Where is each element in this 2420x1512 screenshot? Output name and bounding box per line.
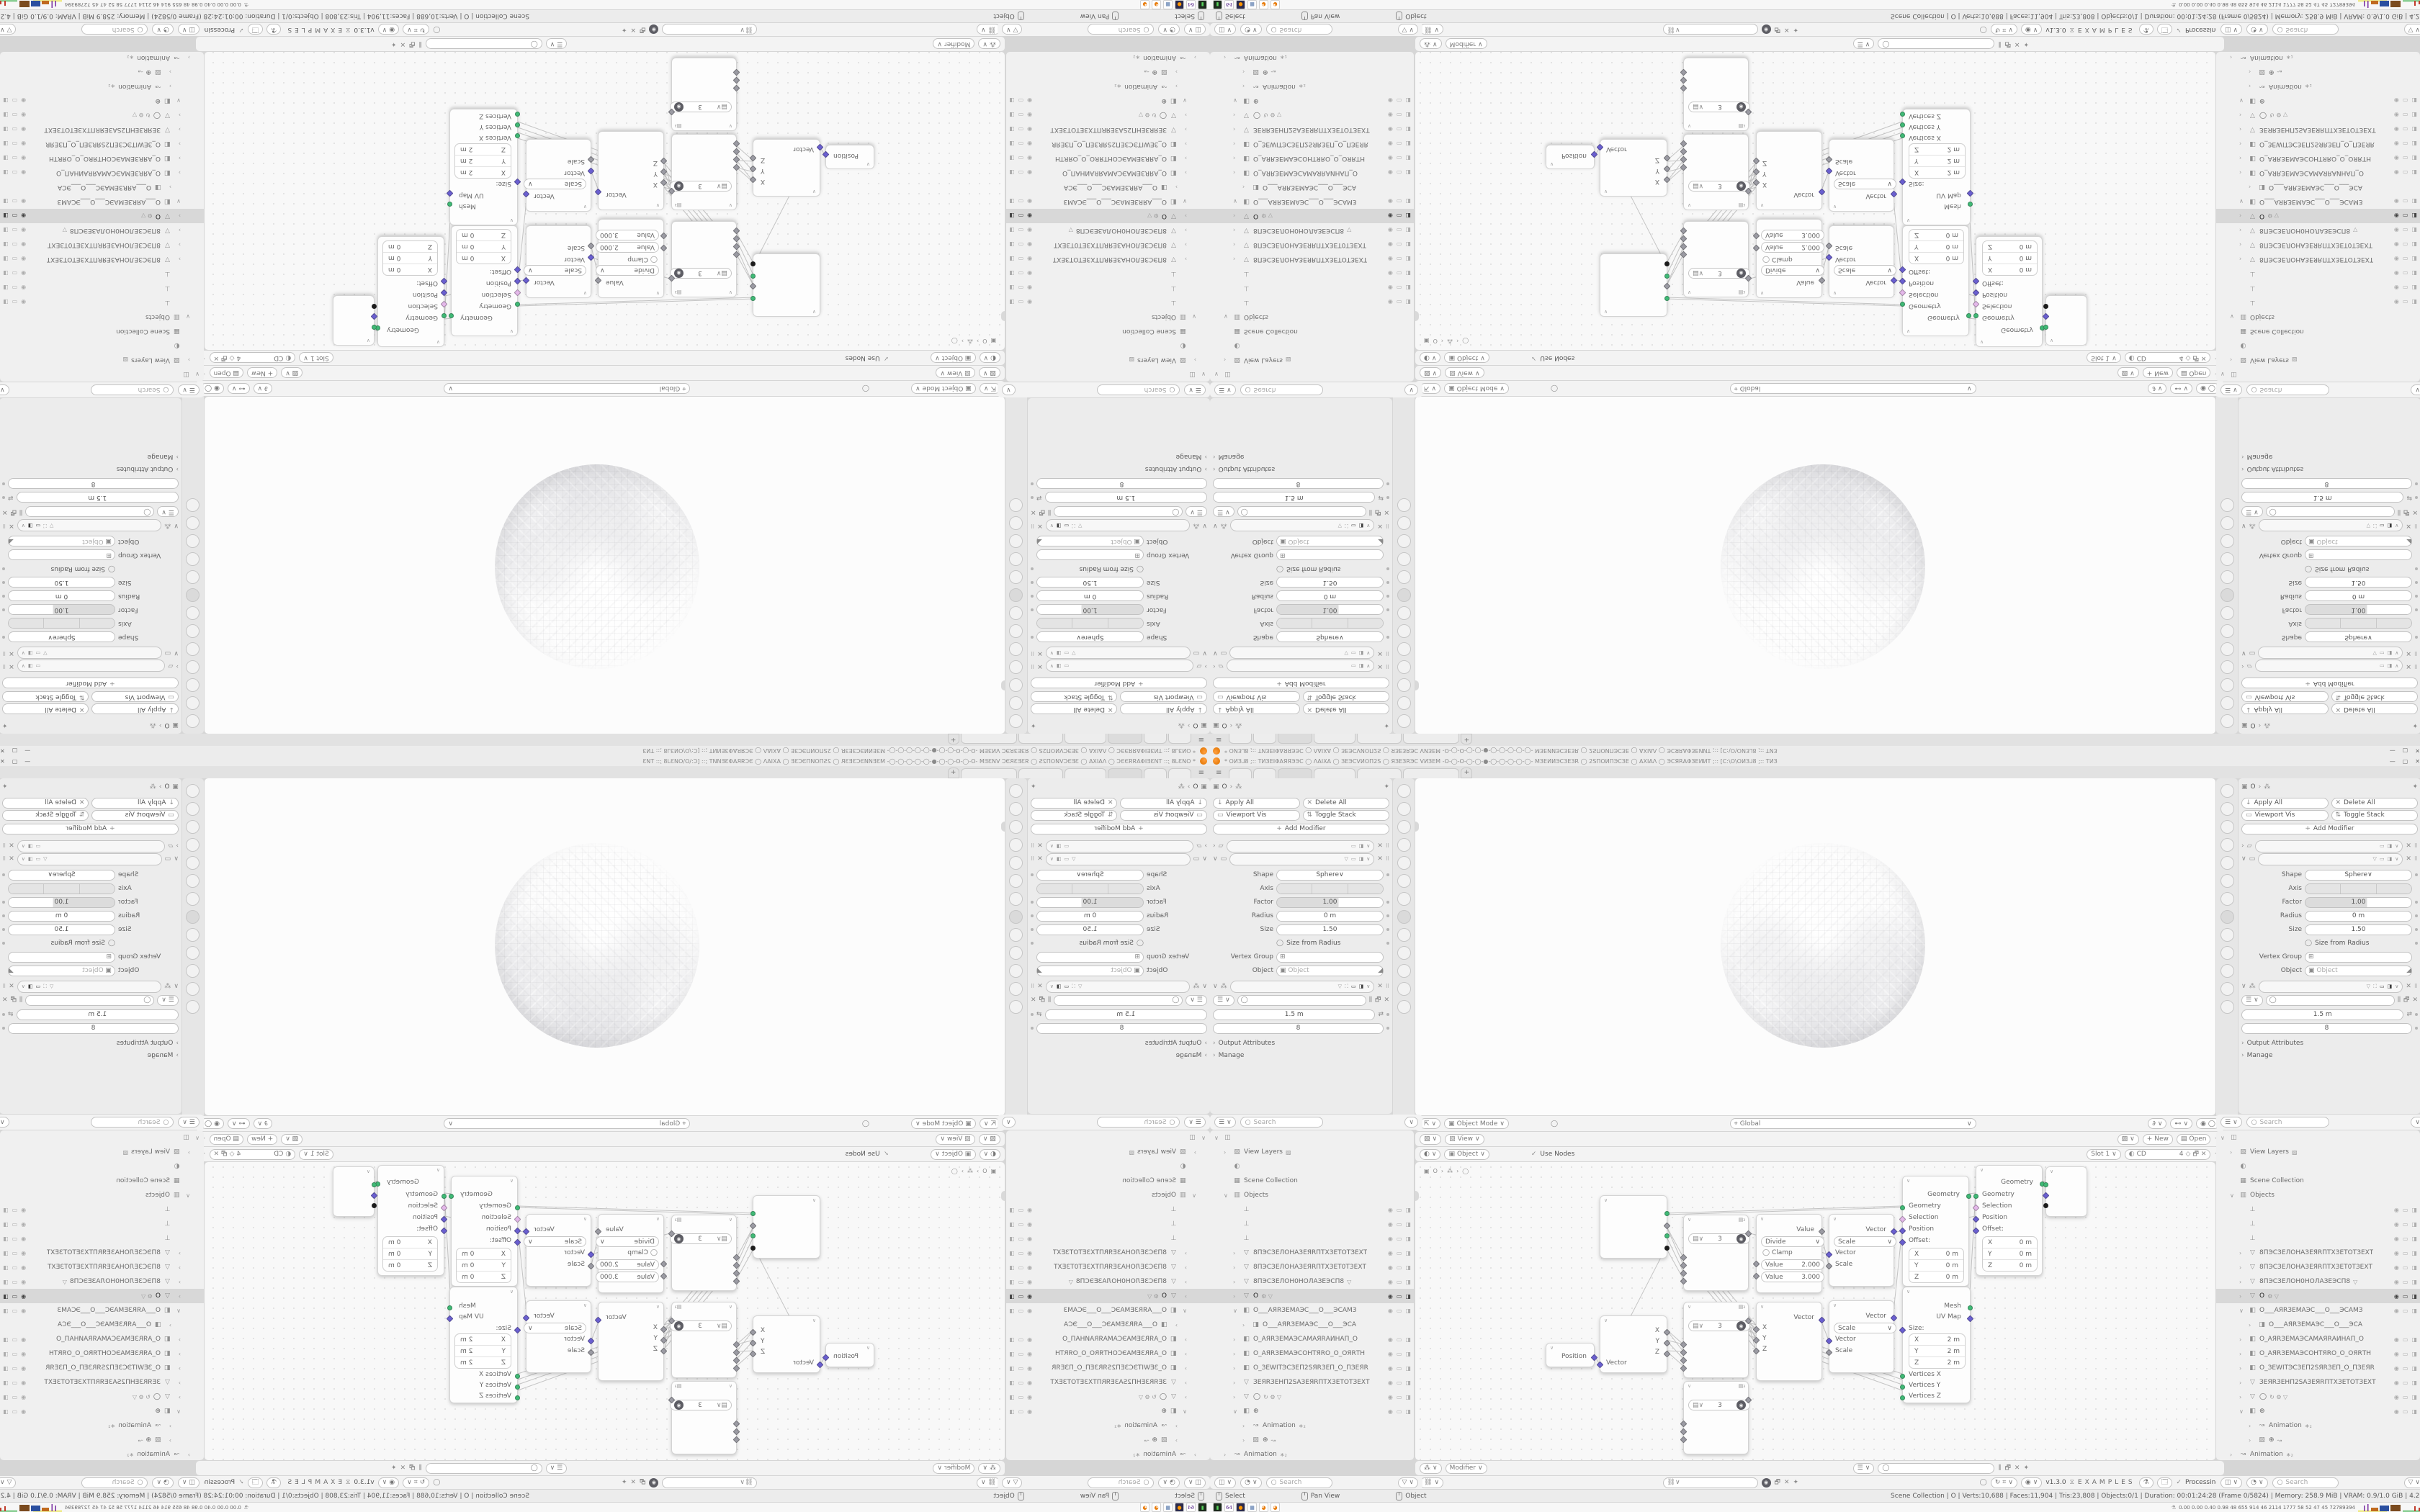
pin-icon[interactable]: ✦ (2, 783, 8, 791)
render-disable-icon[interactable]: ◨ (1405, 1293, 1411, 1300)
render-disable-icon[interactable]: ◨ (1009, 1365, 1015, 1372)
outliner-row[interactable]: › ◧ O_АЯRЗЕМАЭСОНТЯRО_О_ОЯRТН ◉ ▭ ◨ (1006, 1346, 1210, 1361)
group-input-node[interactable]: ∨ (1600, 1195, 1667, 1259)
editor-type-button[interactable]: ⛓∨ (1420, 24, 1443, 35)
vertex-group-field[interactable]: ⊞ (1036, 550, 1144, 561)
nodetree-selector[interactable]: ◯ (426, 1463, 542, 1474)
outliner-row[interactable]: ∨ ◫ ◉ ▭ ◨ (1006, 367, 1210, 382)
hide-icon[interactable]: ◉ (21, 242, 26, 248)
viewport-vis-button[interactable]: ▭Viewport Vis (2241, 810, 2329, 821)
geonodes-count-field[interactable]: 8 (1213, 1023, 1384, 1034)
properties-tab-icon[interactable] (1397, 642, 1411, 656)
apply-all-button[interactable]: ↓Apply All (1121, 798, 1208, 809)
editor-type-button[interactable]: ⁂∨ (1420, 1463, 1442, 1474)
render-disable-icon[interactable]: ◨ (1405, 213, 1411, 220)
render-disable-icon[interactable]: ◨ (1405, 228, 1411, 234)
outliner-row[interactable]: › ▽ ЗЕЯRЗЕНП2SАЗЕЯRПТХЗЕТОТЗЕХТ ◉ ▭ ◨ (0, 1375, 204, 1390)
render-disable-icon[interactable]: ◨ (3, 285, 9, 292)
index-switch-node[interactable]: ∨▤₃ ▤∨3◉ (671, 1302, 737, 1378)
output-socket[interactable] (750, 1233, 756, 1238)
properties-tab-icon[interactable] (1010, 802, 1023, 816)
render-disable-icon[interactable]: ◨ (1405, 1408, 1411, 1415)
size-field[interactable]: 1.50 (1276, 577, 1384, 588)
viewport-disable-icon[interactable]: ▭ (12, 300, 18, 306)
viewport-vis-button[interactable]: ▭Viewport Vis (1121, 692, 1208, 703)
viewport-disable-icon[interactable]: ▭ (2403, 1351, 2408, 1357)
render-disable-icon[interactable]: ◨ (3, 256, 9, 263)
cube-mesh-node[interactable]: ∨ Mesh UV Map Size: X2 mY2 mZ2 m Vertice… (449, 1287, 518, 1403)
hide-icon[interactable]: ◉ (1388, 1408, 1393, 1415)
outliner-row[interactable]: ▦ Scene Collection ◉ ▭ ◨ (0, 324, 204, 338)
vector-component-field[interactable]: X2 m (1909, 1334, 1965, 1346)
viewport-disable-icon[interactable]: ▭ (12, 170, 18, 176)
outliner-row[interactable]: ▦ Scene Collection ◉ ▭ ◨ (1210, 1174, 1414, 1188)
position-input-node[interactable]: ∨ Position (825, 145, 874, 169)
axis-option[interactable] (1037, 619, 1072, 629)
properties-tab-icon[interactable] (2220, 552, 2234, 566)
render-disable-icon[interactable]: ◨ (2411, 1250, 2417, 1256)
outliner-row[interactable]: ⊥ ◉ ▭ ◨ (0, 281, 204, 295)
size-from-radius-checkbox[interactable]: ◯ (1276, 565, 1283, 572)
hide-icon[interactable]: ◉ (2394, 156, 2399, 162)
clamp-checkbox[interactable]: ◯ (1762, 256, 1770, 263)
use-nodes-checkbox[interactable]: ✓ (1531, 354, 1537, 361)
index-switch-node[interactable]: ∨▤₃ ▤∨3◉ (671, 221, 737, 297)
delete-all-button[interactable]: ✕Delete All (2, 704, 89, 715)
render-disable-icon[interactable]: ◨ (3, 242, 9, 248)
outliner-row[interactable]: › ▽ 8ПЭСЗЕЛОНАЗЕЯRПТХЗЕТ0ТЗЕХТ ◉ ▭ ◨ (1006, 238, 1210, 252)
workspace-tab[interactable] (961, 734, 1017, 744)
viewport-disable-icon[interactable]: ▭ (2403, 1408, 2408, 1415)
shape-select[interactable]: Sphere∨ (2305, 632, 2412, 643)
position-input-node[interactable]: ∨ Position (825, 1343, 874, 1367)
viewport-disable-icon[interactable]: ▭ (1397, 98, 1402, 104)
vector-math-node[interactable]: ∨ Vector Scale∨ Vector Scale (526, 1300, 591, 1373)
vector-math-node[interactable]: ∨ Vector Scale∨ Vector Scale (526, 139, 591, 212)
render-disable-icon[interactable]: ◨ (1009, 141, 1015, 148)
viewport-disable-icon[interactable]: ▭ (1018, 242, 1024, 248)
snap-toggle[interactable]: ∂∨ (2148, 1118, 2166, 1129)
viewport-disable-icon[interactable]: ▭ (2403, 1394, 2408, 1400)
outliner-row[interactable]: › ▽ 8ПЭСЗЕЛОН0НОЛАЗЕЭСП8 ▽ ◉ ▭ ◨ (1210, 223, 1414, 238)
outliner-row[interactable]: › ▨ View Layers ▨ ◉ ▭ ◨ (0, 353, 204, 367)
outliner-row[interactable]: › ▽ ◯ ↻ ⚙ ▽ ◉ ▭ ◨ (2216, 1390, 2420, 1404)
render-disable-icon[interactable]: ◨ (3, 98, 9, 104)
modifier-header-collapsed[interactable]: ▭◨∨ (1046, 840, 1194, 852)
workspace-tab[interactable] (1278, 768, 1312, 778)
factor-slider[interactable]: 1.00 (1276, 897, 1384, 908)
render-disable-icon[interactable]: ◨ (2411, 1293, 2417, 1300)
vector-component-field[interactable]: X0 m (383, 1237, 437, 1248)
apply-all-button[interactable]: ↓Apply All (2241, 704, 2329, 715)
properties-tab-icon[interactable] (1397, 624, 1411, 638)
properties-tab-icon[interactable] (1397, 660, 1411, 674)
viewport-disable-icon[interactable]: ▭ (12, 112, 18, 119)
render-disable-icon[interactable]: ◨ (1009, 285, 1015, 292)
apply-all-button[interactable]: ↓Apply All (1213, 704, 1300, 715)
close-button[interactable]: ✕ (2415, 748, 2420, 755)
axis-option[interactable] (1348, 619, 1383, 629)
properties-tab-icon[interactable] (187, 588, 200, 602)
viewport-disable-icon[interactable]: ▭ (2403, 1236, 2408, 1242)
vector-component-field[interactable]: X2 m (1909, 166, 1965, 178)
vector-component-field[interactable]: X2 m (455, 1334, 511, 1346)
taskbar-app-icon[interactable]: ▦ (1247, 0, 1257, 9)
render-disable-icon[interactable]: ◨ (1405, 1308, 1411, 1314)
geonodes-count-field[interactable]: 8 (1213, 479, 1384, 490)
hide-icon[interactable]: ◉ (1388, 199, 1393, 205)
mode-dropdown[interactable]: ▣Object Mode∨ (1444, 1118, 1509, 1129)
outliner-row[interactable]: › ▽ ◯ ↻ ⚙ ▽ ◉ ▭ ◨ (1006, 108, 1210, 122)
render-disable-icon[interactable]: ◨ (1009, 1293, 1015, 1300)
viewport-disable-icon[interactable]: ▭ (1018, 1308, 1024, 1314)
viewport-disable-icon[interactable]: ▭ (1397, 170, 1402, 176)
properties-tab-icon[interactable] (1397, 784, 1411, 798)
properties-tab-icon[interactable] (187, 892, 200, 906)
radius-field[interactable]: 0 m (1036, 591, 1144, 602)
render-disable-icon[interactable]: ◨ (3, 1221, 9, 1228)
properties-tab-icon[interactable] (1010, 910, 1023, 924)
toggle-stack-button[interactable]: ⇅Toggle Stack (2331, 810, 2419, 821)
copy-icon[interactable]: 🗗 (1039, 506, 1045, 518)
vector-component-field[interactable]: X0 m (1909, 252, 1963, 264)
outliner-row[interactable]: › ◧ O_АЯRЗЕМАЭСОНТЯRО_О_ОЯRТН ◉ ▭ ◨ (1210, 1346, 1414, 1361)
add-modifier-button[interactable]: +Add Modifier (1213, 678, 1389, 689)
operation-dropdown[interactable]: Scale∨ (524, 265, 586, 276)
output-socket[interactable] (1664, 1246, 1670, 1251)
add-modifier-button[interactable]: +Add Modifier (2241, 824, 2418, 834)
toolbar-nub[interactable] (1001, 680, 1005, 690)
toolbar-nub[interactable] (1415, 822, 1419, 832)
math-node[interactable]: ∨ Value Divide∨ ◯ Clamp Value2.000 Value… (598, 1214, 664, 1293)
hide-icon[interactable]: ◉ (21, 271, 26, 277)
operation-dropdown[interactable]: Scale∨ (524, 1236, 586, 1247)
operation-dropdown[interactable]: Scale∨ (1834, 1236, 1896, 1247)
hide-icon[interactable]: ◉ (21, 1336, 26, 1343)
viewport-disable-icon[interactable]: ▭ (12, 256, 18, 263)
slot-dropdown[interactable]: Slot 1∨ (299, 1149, 333, 1160)
render-disable-icon[interactable]: ◨ (3, 213, 9, 220)
hide-icon[interactable]: ◉ (1388, 98, 1393, 104)
geometry-node-editor[interactable]: ▣ O › ⁂ › ◯ (205, 1162, 1005, 1460)
viewport-disable-icon[interactable]: ▭ (2403, 1293, 2408, 1300)
viewport-disable-icon[interactable]: ▭ (1397, 256, 1402, 263)
proportional-edit-toggle[interactable]: ⊷∨ (228, 383, 250, 394)
transform-orientation-dropdown[interactable]: ⌖Global∨ (444, 1118, 690, 1129)
viewport-disable-icon[interactable]: ▭ (12, 141, 18, 148)
outliner-row[interactable]: › ↝ Animation ∗₂ ◉ ▭ ◨ (1006, 1447, 1210, 1460)
viewport-disable-icon[interactable]: ▭ (1018, 285, 1024, 292)
outliner-row[interactable]: › ▽ ЗЕЯRЗЕНП2SАЗЕЯRПТХЗЕТОТЗЕХТ ◉ ▭ ◨ (0, 122, 204, 137)
geometry-output-socket[interactable] (1664, 1211, 1670, 1216)
hide-icon[interactable]: ◉ (1027, 1250, 1032, 1256)
outliner-row[interactable]: › ↝ Animation ∗₂ ◉ ▭ ◨ (2216, 1418, 2420, 1433)
nodetree-type-dropdown[interactable]: ☰∨ (1213, 995, 1234, 1006)
outliner-row[interactable]: ▦ Scene Collection ◉ ▭ ◨ (1006, 1174, 1210, 1188)
hide-icon[interactable]: ◉ (1388, 127, 1393, 133)
outliner-row[interactable]: › ▽ 8ПЭСЗЕЛОН0НОЛАЗЕЭСП8 ▽ ◉ ▭ ◨ (0, 1274, 204, 1289)
outliner-row[interactable]: › ▨ View Layers ▨ ◉ ▭ ◨ (0, 1145, 204, 1159)
properties-tab-icon[interactable] (1397, 892, 1411, 906)
vector-component-field[interactable]: Y0 m (1909, 1260, 1963, 1272)
properties-tab-icon[interactable] (187, 660, 200, 674)
render-disable-icon[interactable]: ◨ (2411, 1264, 2417, 1271)
toggle-stack-button[interactable]: ⇅Toggle Stack (1031, 810, 1118, 821)
hide-icon[interactable]: ◉ (1027, 1207, 1032, 1213)
workspace-tab[interactable] (1018, 768, 1063, 778)
viewport-disable-icon[interactable]: ▭ (1018, 1408, 1024, 1415)
properties-tab-icon[interactable] (1010, 642, 1023, 656)
render-disable-icon[interactable]: ◨ (3, 1394, 9, 1400)
vector-math-node[interactable]: ∨ Vector Scale∨ Vector Scale (1829, 1214, 1894, 1287)
properties-tab-icon[interactable] (1010, 552, 1023, 566)
outliner-row[interactable]: › ◧ O_ЗЕWІТЭСЗЕП2SЯRЗЕП_О_ПЗЕЯR ◉ ▭ ◨ (2216, 137, 2420, 151)
axis-option[interactable] (79, 884, 115, 894)
toggle-stack-button[interactable]: ⇅Toggle Stack (2331, 692, 2419, 703)
viewport-disable-icon[interactable]: ▭ (2403, 156, 2408, 162)
hide-icon[interactable]: ◉ (1388, 1394, 1393, 1400)
hide-icon[interactable]: ◉ (2394, 1336, 2399, 1343)
viewport-disable-icon[interactable]: ▭ (12, 1250, 18, 1256)
hide-icon[interactable]: ◉ (1027, 1279, 1032, 1285)
workspace-tab[interactable] (1168, 768, 1191, 778)
index-switch-node[interactable]: ∨▤₃ ▤∨3◉ (1683, 1215, 1749, 1291)
close-button[interactable]: ✕ (0, 758, 5, 765)
combine-xyz-node[interactable]: ∨ Vector X Y Z (1756, 131, 1822, 210)
vector-component-field[interactable]: Y0 m (457, 240, 511, 252)
vector-component-field[interactable]: Z0 m (1983, 1260, 2037, 1271)
render-disable-icon[interactable]: ◨ (1009, 213, 1015, 220)
hide-icon[interactable]: ◉ (1388, 1380, 1393, 1386)
render-disable-icon[interactable]: ◨ (1405, 199, 1411, 205)
outliner-row[interactable]: › ↝ Animation ∗₂ ◉ ▭ ◨ (1210, 1447, 1414, 1460)
outliner-row[interactable]: › ▽ ◯ ↻ ⚙ ▽ ◉ ▭ ◨ (1006, 1390, 1210, 1404)
properties-tab-icon[interactable] (1397, 802, 1411, 816)
viewport-disable-icon[interactable]: ▭ (12, 127, 18, 133)
outliner-row[interactable]: ◐ ◉ ▭ ◨ (2216, 338, 2420, 353)
vector-component-field[interactable]: X0 m (457, 1248, 511, 1260)
axis-option[interactable] (9, 884, 43, 894)
properties-tab-icon[interactable] (1010, 696, 1023, 710)
shape-select[interactable]: Sphere∨ (8, 870, 115, 881)
outliner-row[interactable]: ∨ ◧ ⊕ ◉ ▭ ◨ (2216, 1404, 2420, 1418)
vector-component-field[interactable]: Z0 m (1909, 230, 1963, 240)
hide-icon[interactable]: ◉ (2394, 213, 2399, 220)
render-disable-icon[interactable]: ◨ (3, 1207, 9, 1213)
vertex-group-field[interactable]: ⊞ (1276, 550, 1384, 561)
toggle-stack-button[interactable]: ⇅Toggle Stack (1303, 810, 1390, 821)
taskbar-app-icon[interactable]: ● (1236, 0, 1245, 9)
outliner-row[interactable]: › ◧ O_АЯRЗЕМАЭСАМАЯRАИНАП_О ◉ ▭ ◨ (0, 1332, 204, 1346)
hide-icon[interactable]: ◉ (2394, 1293, 2399, 1300)
int-value-row[interactable]: ▤∨3◉ (670, 268, 732, 279)
hide-icon[interactable]: ◉ (1027, 1308, 1032, 1314)
outliner-row[interactable]: ∨ ▥ Objects ◉ ▭ ◨ (1210, 1188, 1414, 1202)
properties-tab-icon[interactable] (1010, 1000, 1023, 1014)
outliner-row[interactable]: › ▨ View Layers ▨ ◉ ▭ ◨ (2216, 1145, 2420, 1159)
hide-icon[interactable]: ◉ (1027, 1336, 1032, 1343)
render-disable-icon[interactable]: ◨ (1405, 98, 1411, 104)
vector-component-field[interactable]: Y0 m (457, 1260, 511, 1272)
outliner-row[interactable]: › ↝ Animation ∗₂ ◉ ▭ ◨ (0, 1447, 204, 1460)
hide-icon[interactable]: ◉ (1027, 1264, 1032, 1271)
viewport-disable-icon[interactable]: ▭ (12, 98, 18, 104)
outliner-row[interactable]: › ▽ ЗЕЯRЗЕНП2SАЗЕЯRПТХЗЕТОТЗЕХТ ◉ ▭ ◨ (2216, 1375, 2420, 1390)
properties-tab-icon[interactable] (1397, 982, 1411, 996)
render-disable-icon[interactable]: ◨ (1405, 156, 1411, 162)
vector-component-field[interactable]: Z0 m (1983, 241, 2037, 252)
outliner-row[interactable]: ∨ ◧ ⊕ ◉ ▭ ◨ (2216, 94, 2420, 108)
taskbar-app-icon[interactable]: ▮ (1198, 0, 1207, 9)
outliner-row[interactable]: ⊥ ◉ ▭ ◨ (2216, 1231, 2420, 1246)
group-output-node[interactable]: ∨ (2045, 1166, 2087, 1217)
geonodes-mode-dropdown[interactable]: Modifier∨ (1446, 1463, 1487, 1474)
outliner-row[interactable]: ◐ ◉ ▭ ◨ (1006, 338, 1210, 353)
axis-option[interactable] (43, 619, 79, 629)
render-disable-icon[interactable]: ◨ (1009, 1221, 1015, 1228)
apply-all-button[interactable]: ↓Apply All (1121, 704, 1208, 715)
properties-tab-icon[interactable] (1010, 820, 1023, 834)
outliner-row[interactable]: ◐ ◉ ▭ ◨ (1210, 1159, 1414, 1174)
outliner-row[interactable]: › ▽ 8ПЭСЗЕЛОНАЗЕЯRПТХЗЕТОТЗЕХТ ◉ ▭ ◨ (0, 1246, 204, 1260)
nodetree-type-dropdown[interactable]: ☰∨ (1186, 995, 1207, 1006)
viewport-disable-icon[interactable]: ▭ (12, 1380, 18, 1386)
properties-tab-icon[interactable] (187, 696, 200, 710)
set-position-node[interactable]: ∨ Geometry Geometry Selection Position O… (451, 1176, 518, 1287)
outliner-row[interactable]: ∨ ◧ ⊕ ◉ ▭ ◨ (1006, 94, 1210, 108)
render-disable-icon[interactable]: ◨ (1009, 1236, 1015, 1242)
int-value-row[interactable]: ▤∨3◉ (1688, 1233, 1750, 1244)
outliner-row[interactable]: › ↝ Animation ∗₂ ◉ ▭ ◨ (2216, 52, 2420, 65)
viewport-disable-icon[interactable]: ▭ (2403, 285, 2408, 292)
outliner-row[interactable]: › ▽ ◯ ↻ ⚙ ▽ ◉ ▭ ◨ (1210, 108, 1414, 122)
render-disable-icon[interactable]: ◨ (3, 1408, 9, 1415)
editor-type-button[interactable]: ◐∨ (1420, 1149, 1440, 1160)
properties-tab-icon[interactable] (187, 642, 200, 656)
geonodes-modifier-header[interactable]: ▽⛶▭◨∨ (1230, 981, 1375, 993)
outliner-row[interactable]: ◐ ◉ ▭ ◨ (0, 1159, 204, 1174)
proportional-edit-toggle[interactable]: ⊷∨ (2170, 1118, 2192, 1129)
axis-option[interactable] (1277, 884, 1312, 894)
vector-component-field[interactable]: Z0 m (457, 230, 511, 240)
properties-tab-icon[interactable] (1010, 946, 1023, 960)
properties-tab-icon[interactable] (1397, 552, 1411, 566)
outliner-row[interactable]: › ▨ ⊕ ↝ ◉ ▭ ◨ (1210, 65, 1414, 79)
outliner-row[interactable]: › ◨ O___АЯRЗЕМАЭС___О___ЭСА ◉ ▭ ◨ (2216, 1318, 2420, 1332)
pin-icon[interactable]: ✦ (1384, 721, 1389, 729)
maximize-button[interactable]: ▢ (12, 758, 18, 765)
viewport-disable-icon[interactable]: ▭ (1018, 1221, 1024, 1228)
hide-icon[interactable]: ◉ (21, 141, 26, 148)
filter-dropdown[interactable]: ∨ (1404, 384, 1418, 395)
taskbar-app-icon[interactable]: ● (1175, 0, 1184, 9)
outliner-row[interactable]: ⊥ ◉ ▭ ◨ (1006, 1231, 1210, 1246)
shader-target-dropdown[interactable]: ▣Object∨ (1444, 1149, 1489, 1160)
properties-tab-icon[interactable] (1010, 624, 1023, 638)
outliner-row[interactable]: › ▽ ЗЕЯRЗЕНП2SАЗЕЯRПТХЗЕТОТЗЕХТ ◉ ▭ ◨ (1006, 122, 1210, 137)
snap-toggle[interactable]: ∂∨ (254, 1118, 272, 1129)
minimize-button[interactable]: — (2390, 748, 2396, 755)
cast-modifier-header[interactable]: ▽▭◨∨ (1229, 647, 1374, 660)
properties-tab-icon[interactable] (2220, 856, 2234, 870)
properties-tab-icon[interactable] (1397, 534, 1411, 548)
keyframe-dot[interactable] (1386, 873, 1389, 876)
viewport-disable-icon[interactable]: ▭ (1018, 1351, 1024, 1357)
hide-icon[interactable]: ◉ (1027, 1221, 1032, 1228)
render-disable-icon[interactable]: ◨ (1009, 300, 1015, 306)
properties-tab-icon[interactable] (1010, 678, 1023, 692)
index-switch-node[interactable]: ∨▤₃ ▤∨3◉ (671, 1381, 737, 1454)
pin-icon[interactable]: ✦ (1031, 783, 1036, 791)
value-field[interactable]: Value2.000 (596, 1259, 659, 1270)
clamp-checkbox[interactable]: ◯ (1762, 1249, 1770, 1256)
apply-all-button[interactable]: ↓Apply All (1213, 798, 1300, 809)
size-from-radius-checkbox[interactable]: ◯ (2305, 565, 2312, 572)
apply-all-button[interactable]: ↓Apply All (2241, 798, 2329, 809)
shape-select[interactable]: Sphere∨ (8, 632, 115, 643)
viewport-3d[interactable] (205, 778, 1005, 1115)
hide-icon[interactable]: ◉ (1027, 1408, 1032, 1415)
geometry-node-editor[interactable]: ▣ O › ⁂ › ◯ (205, 52, 1005, 350)
axis-option[interactable] (2341, 884, 2376, 894)
toggle-stack-button[interactable]: ⇅Toggle Stack (1303, 692, 1390, 703)
render-disable-icon[interactable]: ◨ (3, 170, 9, 176)
viewport-disable-icon[interactable]: ▭ (1397, 1380, 1402, 1386)
hide-icon[interactable]: ◉ (2394, 256, 2399, 263)
output-socket[interactable] (750, 274, 756, 279)
new-image-button[interactable]: +New (2143, 1134, 2173, 1145)
outliner-row[interactable]: ∨ ◧ O___АЯRЗЕМАЭС___О___ЭСАМЗ ◉ ▭ ◨ (2216, 1303, 2420, 1318)
hide-icon[interactable]: ◉ (1388, 228, 1393, 234)
viewport-disable-icon[interactable]: ▭ (12, 285, 18, 292)
output-socket[interactable] (1664, 1233, 1670, 1238)
hide-icon[interactable]: ◉ (1388, 213, 1393, 220)
add-modifier-button[interactable]: +Add Modifier (1031, 678, 1207, 689)
outliner-row[interactable]: › ▽ O ⚙ ▽ ◉ ▭ ◨ (0, 209, 204, 223)
outliner-row[interactable]: › ◧ O_АЯRЗЕМАЭСОНТЯRО_О_ОЯRТН ◉ ▭ ◨ (0, 1346, 204, 1361)
value-output-socket[interactable] (1664, 1223, 1671, 1230)
workspace-tab[interactable] (1108, 734, 1142, 744)
n-panel-nub[interactable] (1415, 1191, 1419, 1201)
outliner-row[interactable]: ⊥ ◉ ▭ ◨ (1210, 281, 1414, 295)
hide-icon[interactable]: ◉ (1027, 127, 1032, 133)
geonodes-radius-field[interactable]: 1.5 m (1045, 492, 1207, 503)
render-disable-icon[interactable]: ◨ (1405, 256, 1411, 263)
outliner-row[interactable]: ∨ ▥ Objects ◉ ▭ ◨ (0, 1188, 204, 1202)
vector-component-field[interactable]: X0 m (1909, 1248, 1963, 1260)
hide-icon[interactable]: ◉ (21, 1279, 26, 1285)
outliner-row[interactable]: › ↝ Animation ∗₂ ◉ ▭ ◨ (0, 79, 204, 94)
outliner-row[interactable]: › ▽ 8ПЭСЗЕЛОНАЗЕЯRПТХЗЕТОТЗЕХТ ◉ ▭ ◨ (1006, 1246, 1210, 1260)
math-node[interactable]: ∨ Value Divide∨ ◯ Clamp Value2.000 Value… (598, 219, 664, 298)
outliner-row[interactable]: › ◨ O___АЯRЗЕМАЭС___О___ЭСА ◉ ▭ ◨ (1006, 1318, 1210, 1332)
copy-icon[interactable]: 🗗 (1375, 994, 1381, 1006)
outliner-row[interactable]: ⊥ ◉ ▭ ◨ (0, 1202, 204, 1217)
outliner-row[interactable]: › ▽ ◯ ↻ ⚙ ▽ ◉ ▭ ◨ (0, 108, 204, 122)
group-input-node[interactable]: ∨ (1600, 253, 1667, 317)
object-field[interactable]: ▣ Object ◢ (1276, 966, 1384, 976)
hide-icon[interactable]: ◉ (1027, 1293, 1032, 1300)
hide-icon[interactable]: ◉ (21, 170, 26, 176)
outliner-row[interactable]: › ▨ ⊕ ↝ ◉ ▭ ◨ (1006, 65, 1210, 79)
workspace-tab[interactable] (1314, 768, 1355, 778)
cube-mesh-node[interactable]: ∨ Mesh UV Map Size: X2 mY2 mZ2 m Vertice… (449, 109, 518, 225)
outliner-row[interactable]: › ▽ 8ПЭСЗЕЛОНАЗЕЯRПТХЗЕТОТЗЕХТ ◉ ▭ ◨ (2216, 1246, 2420, 1260)
render-disable-icon[interactable]: ◨ (2411, 1380, 2417, 1386)
geonodes-modifier-header[interactable]: ▽⛶▭◨∨ (1230, 520, 1375, 532)
operation-dropdown[interactable]: Divide∨ (596, 1236, 659, 1247)
radius-field[interactable]: 0 m (1276, 911, 1384, 922)
